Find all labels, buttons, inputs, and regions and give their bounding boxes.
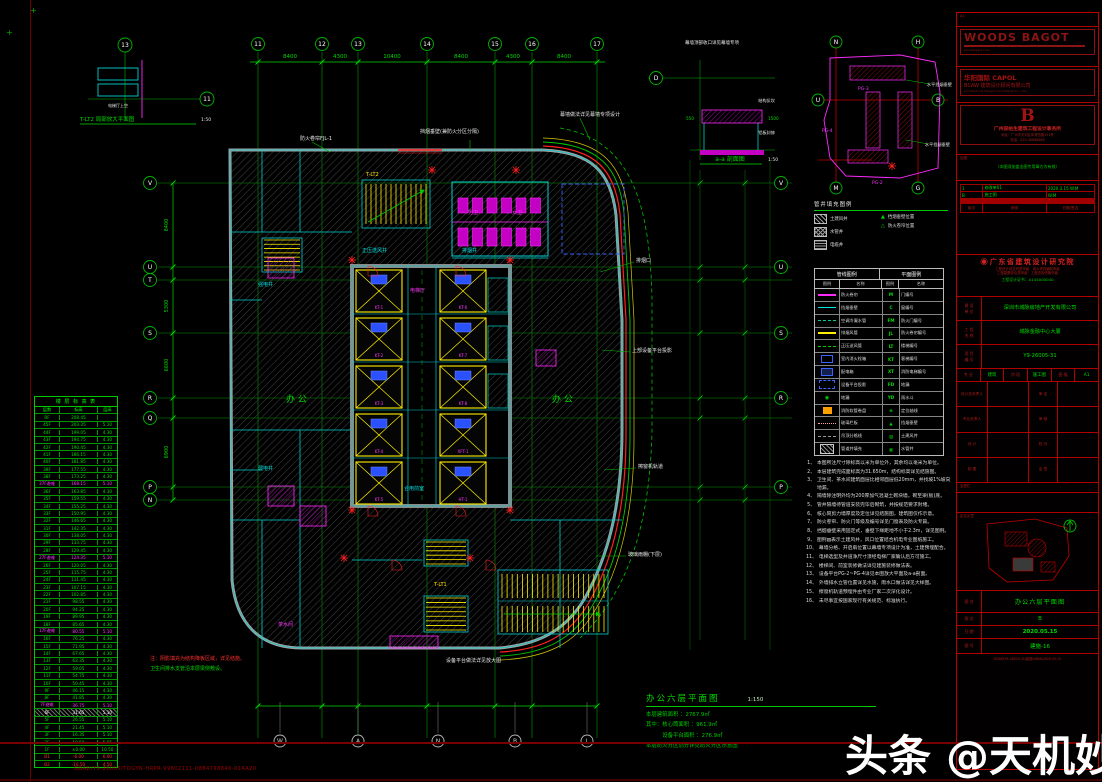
svg-text:水平挡烟垂壁: 水平挡烟垂壁 <box>925 141 950 148</box>
plan-label: 茶水间 <box>278 621 293 628</box>
svg-text:G: G <box>916 185 921 192</box>
table-row: 8F41.854.30 <box>35 695 117 702</box>
legend-row: 消防软管卷盘⊕定位轴线 <box>815 405 943 418</box>
project-field: 工 程 名 称城脉金融中心大厦 <box>957 321 1098 345</box>
elevator-car <box>371 323 387 332</box>
elevator-car <box>455 371 471 380</box>
note-item: 14、外墙排水立管位置详见水施，雨水口做法详见大样图。 <box>806 580 953 587</box>
svg-text:Q: Q <box>148 415 153 422</box>
svg-text:17: 17 <box>593 41 601 48</box>
table-row: 20F94.254.30 <box>35 606 117 613</box>
table-row: 31F142.354.30 <box>35 525 117 532</box>
table-row: 34F155.254.30 <box>35 503 117 510</box>
caption-title: 办公六层平面图 <box>646 692 720 704</box>
table-row: 9F46.154.30 <box>35 687 117 694</box>
legend-row: 正压送风管LT楼梯编号 <box>815 340 943 353</box>
plan-label: 男卫 <box>468 210 478 216</box>
svg-text:R: R <box>779 395 783 402</box>
equipment-pad <box>268 258 294 278</box>
svg-text:550: 550 <box>686 116 694 121</box>
legend-small-title: 管井填充图例 <box>814 200 948 211</box>
note-item: 5、管井隔墙待管道安装完毕后砌筑，并按规范要求封堵。 <box>806 502 953 509</box>
table-row: 42F190.454.30 <box>35 444 117 451</box>
equipment-pad <box>268 486 294 506</box>
table-row: 32F146.654.30 <box>35 518 117 525</box>
legend-item: 水管井 <box>814 227 881 237</box>
table-row: 18F85.654.30 <box>35 621 117 628</box>
svg-text:U: U <box>148 264 152 271</box>
note-item: 7、防火卷帘、防火门等级及编号详见门窗表及防火专篇。 <box>806 519 953 526</box>
signature-grid: 设计总负责人审 定专业负责人审 核设 计校 对制 图会 签 <box>957 382 1098 483</box>
svg-text:PG-2: PG-2 <box>872 180 883 186</box>
fire-shutter-mark <box>506 256 514 264</box>
cert-line-2: 工程勘察综合类甲级 工程咨询资格甲级 <box>957 271 1098 275</box>
table-row: 22F102.854.30 <box>35 591 117 598</box>
legend-row: 室内消火栓箱KT客梯编号 <box>815 353 943 366</box>
plan-label: 办 公 <box>286 393 307 405</box>
note-item: 16、未尽事宜按国家现行有关规范、标准执行。 <box>806 598 953 605</box>
legend-row: 排烟风管JL防火卷帘编号 <box>815 328 943 341</box>
svg-text:P: P <box>779 484 783 491</box>
svg-text:8400: 8400 <box>164 219 170 232</box>
svg-text:N: N <box>148 497 153 504</box>
svg-text:1:50: 1:50 <box>768 157 778 163</box>
legend-table: 管线图例 平面图例 图例名称图例名称 防火卷帘M门编号挡烟垂壁C窗编号空调冷凝水… <box>814 268 944 456</box>
plan-label: T-LT1 <box>433 582 447 588</box>
watermark: 头条 @天机妙谈 <box>845 722 1102 782</box>
rbs-logo: B 广州容柏生建筑工程设计事务所 地址：广州市天河区体育西路191号 电话：02… <box>960 105 1095 145</box>
table-row: 23F107.154.30 <box>35 584 117 591</box>
fire-shutter-mark <box>466 554 474 562</box>
svg-text:5300: 5300 <box>164 300 170 313</box>
table-row: 45F203.355.10 <box>35 422 117 429</box>
duct-shaft <box>488 374 508 408</box>
table-row: 10F50.454.30 <box>35 680 117 687</box>
svg-text:13: 13 <box>121 42 129 49</box>
table-row: 44F199.054.30 <box>35 429 117 436</box>
plan-label: 正压送风井 <box>362 247 387 254</box>
equipment-pad <box>390 636 438 648</box>
svg-text:水平挡烟垂壁: 水平挡烟垂壁 <box>927 81 952 88</box>
table-row: 43F194.754.30 <box>35 437 117 444</box>
registration-mark: + <box>6 28 13 37</box>
note-item: 12、楼梯间、前室装修做法详见建施装修做法表。 <box>806 563 953 570</box>
fire-shutter-mark <box>428 166 436 174</box>
svg-text:16: 16 <box>528 41 536 48</box>
floor-table-title: 楼 层 标 高 表 <box>35 397 117 407</box>
legend-row: 防火卷帘M门编号 <box>815 289 943 302</box>
legend-row: 挡烟垂壁C窗编号 <box>815 302 943 315</box>
svg-text:11: 11 <box>203 96 211 103</box>
version-value: B <box>982 613 1098 625</box>
svg-text:U: U <box>816 97 820 104</box>
plan-label: 卫生间排水支管沿本层梁侧敷设。 <box>150 665 225 672</box>
svg-text:KT-5: KT-5 <box>375 497 384 502</box>
svg-text:a-a 剖面图: a-a 剖面图 <box>715 155 744 163</box>
table-row: 38F173.254.30 <box>35 473 117 480</box>
elevator-car <box>371 419 387 428</box>
revision-table-footer: 版次说明日期/签名 <box>960 204 1095 213</box>
company-seal-icon: ◉ <box>980 257 988 267</box>
woods-bagot-logo: WOODS BAGOT woodsbagot.com <box>960 29 1095 55</box>
keyplan-label: 区位示意 <box>957 513 977 520</box>
legend-row: 管道井填充▦水管井 <box>815 443 943 455</box>
legend-item: △防火卷帘位置 <box>881 223 948 229</box>
equipment-pad <box>536 350 556 366</box>
stamp-note: （本图须加盖出图专用章方为有效） <box>957 164 1098 170</box>
table-row: 13F63.354.30 <box>35 658 117 665</box>
note-item: 3、卫生间、茶水间建筑面层比相邻面层低20mm，并找坡1%坡向地漏。 <box>806 477 953 491</box>
note-item: 2、本层建筑完成面标高为31.650m，结构标高详见结施图。 <box>806 469 953 476</box>
plan-label: 办 公 <box>552 393 573 405</box>
svg-text:N: N <box>834 39 839 46</box>
svg-text:结构反坎: 结构反坎 <box>758 97 776 104</box>
svg-text:14: 14 <box>423 41 431 48</box>
plan-label: 幕墙做法详见幕墙专项设计 <box>560 111 620 118</box>
drawing-sheet: 11121314151617WANBLVUTSRQPNVUSRP84004300… <box>0 0 1102 782</box>
table-row: 29F133.754.30 <box>35 540 117 547</box>
svg-text:13: 13 <box>354 41 362 48</box>
svg-text:6600: 6600 <box>164 359 170 372</box>
fire-shutter-mark <box>348 506 356 514</box>
version-label: 版 次 <box>957 613 982 625</box>
plan-label: 合用前室 <box>404 485 424 492</box>
plan-label: 电梯厅 <box>410 287 425 294</box>
table-row: 33F150.954.30 <box>35 510 117 517</box>
fire-shutter-mark <box>512 166 520 174</box>
floor-plan-canvas: 11121314151617WANBLVUTSRQPNVUSRP84004300… <box>0 0 956 782</box>
sheet-size-tag: A1 <box>957 13 1098 19</box>
svg-text:H: H <box>916 39 921 46</box>
plan-label: 挡烟垂壁(兼防火分区分隔) <box>420 128 479 135</box>
legend-header-right: 平面图例 <box>880 269 944 279</box>
dwg-name-label: 图 名 <box>957 591 982 612</box>
capol-logo: 华阳国际 CAPOL BCAW 建筑设计顾问有限公司 Architectural… <box>960 69 1095 96</box>
svg-text:电梯厅上空: 电梯厅上空 <box>108 102 128 108</box>
elevator-car <box>455 323 471 332</box>
table-row: 层数标高层高 <box>35 407 117 414</box>
legend-item: 土建风井 <box>814 214 881 224</box>
svg-text:PG-4: PG-4 <box>822 128 833 134</box>
dwg-name-value: 办公六层平面图 <box>982 591 1098 612</box>
table-row: 1F±0.0010.50 <box>35 746 117 753</box>
plan-label: 擦窗机轨道 <box>638 463 663 470</box>
legend-row: 空调冷凝水管FM防火门编号 <box>815 315 943 328</box>
equipment-pad <box>300 506 326 526</box>
svg-text:T-LT2 局部放大平面图: T-LT2 局部放大平面图 <box>79 115 135 123</box>
table-row: 7F避难36.755.10 <box>35 702 117 709</box>
table-row: 26F120.054.30 <box>35 562 117 569</box>
svg-text:T: T <box>147 277 152 284</box>
table-row: 16F76.254.30 <box>35 636 117 643</box>
table-row: 15F71.954.30 <box>35 643 117 650</box>
table-row: 35F159.554.30 <box>35 496 117 503</box>
note-item: 11、电梯选型及井道净尺寸须经电梯厂家确认后方可施工。 <box>806 554 953 561</box>
plan-label: 设备平台做法详见放大图 <box>446 657 501 664</box>
table-row: 30F138.054.30 <box>35 532 117 539</box>
table-row: 12F59.054.30 <box>35 665 117 672</box>
title-block: A1 WOODS BAGOT woodsbagot.com 华阳国际 CAPOL… <box>956 12 1099 770</box>
legend-row: ◉地漏YD雨水斗 <box>815 392 943 405</box>
legend-header-left: 管线图例 <box>815 269 880 279</box>
table-row: 3F16.355.10 <box>35 732 117 739</box>
svg-text:8400: 8400 <box>283 54 297 60</box>
svg-text:P: P <box>148 484 152 491</box>
svg-text:KT-6: KT-6 <box>459 305 468 310</box>
legend-item: ▲挡烟垂壁位置 <box>881 214 948 220</box>
svg-text:4300: 4300 <box>333 54 347 60</box>
table-row: 19F89.954.30 <box>35 614 117 621</box>
legend-row: 吊顶分格线▨土建风井 <box>815 430 943 443</box>
table-row: 36F163.854.30 <box>35 488 117 495</box>
svg-text:KT-3: KT-3 <box>375 401 384 406</box>
file-code: GDAD\Y9-26005-31\建施\06RA\2020.05.15 <box>957 654 1098 661</box>
svg-text:12: 12 <box>318 41 326 48</box>
elevator-car <box>455 467 471 476</box>
table-row: 40F181.854.30 <box>35 459 117 466</box>
plot-label: 出图： <box>957 155 1098 162</box>
plan-label: 注：阴影填充为结构降板区域，详见结施。 <box>150 655 245 662</box>
table-row: RF208.45 <box>35 414 117 421</box>
table-row: 21F98.554.30 <box>35 599 117 606</box>
table-row: 11F54.754.30 <box>35 673 117 680</box>
elevator-car <box>371 467 387 476</box>
plan-label: 排烟口 <box>636 257 651 264</box>
svg-text:幕墙顶部收口详见幕墙专项: 幕墙顶部收口详见幕墙专项 <box>685 39 739 46</box>
svg-text:铝板封修: 铝板封修 <box>758 129 776 136</box>
svg-text:M: M <box>833 185 838 192</box>
elevator-car <box>455 275 471 284</box>
svg-text:1500: 1500 <box>768 116 779 121</box>
svg-text:KT-2: KT-2 <box>375 353 384 358</box>
table-row: 39F177.554.30 <box>35 466 117 473</box>
plan-label: 上部设备平台投影 <box>632 347 672 354</box>
key-plan <box>977 516 1081 588</box>
svg-text:KT-1: KT-1 <box>375 305 384 310</box>
legend-row: 配电箱XT消防电梯编号 <box>815 366 943 379</box>
caption-scale: 1:150 <box>748 697 764 703</box>
revision-table: 1修改单012020.3.15 W.MB施工图W.M <box>960 184 1095 204</box>
duct-shaft <box>488 278 508 312</box>
spec-row: 专 业建筑阶 段施工图图 幅A1 <box>957 369 1098 382</box>
table-row: 41F186.154.30 <box>35 451 117 458</box>
legend-item: 电缆井 <box>814 240 881 250</box>
table-row: 14F67.654.30 <box>35 650 117 657</box>
svg-text:KT-7: KT-7 <box>459 353 468 358</box>
dwg-number-label: 图 号 <box>957 639 982 653</box>
floor-level-table: 楼 层 标 高 表层数标高层高RF208.4545F203.355.1044F1… <box>34 396 118 768</box>
duct-shaft <box>488 326 508 360</box>
table-row: 4F21.455.10 <box>35 724 117 731</box>
svg-text:1:50: 1:50 <box>201 117 211 123</box>
svg-text:R: R <box>148 395 152 402</box>
note-item: 1、本图所注尺寸除标高以米为单位外，其余均以毫米为单位。 <box>806 460 953 467</box>
note-item: 10、幕墙分格、开启扇位置以幕墙专项设计为准，土建预埋配合。 <box>806 545 953 552</box>
table-row: B1-6.006.00 <box>35 754 117 761</box>
table-row: 37F避难168.155.10 <box>35 481 117 488</box>
svg-text:U: U <box>779 264 783 271</box>
fire-shutter-mark <box>348 256 356 264</box>
legend-row: 设备平台投影FD地漏 <box>815 379 943 392</box>
date-value: 2020.05.15 <box>982 626 1098 638</box>
note-item: 4、隔墙除注明外均为200厚加气混凝土砌块墙，砌至梁(板)底。 <box>806 493 953 500</box>
table-row: 6F31.655.10 <box>35 709 117 716</box>
fire-shutter-mark <box>506 506 514 514</box>
date-label: 日 期 <box>957 626 982 638</box>
bottom-left-code: GDAD/Y9-26005/TOGYN-HRPR-99602111-088479… <box>74 766 257 772</box>
plan-label: 排烟井 <box>462 247 477 254</box>
area-stat: 本层建筑面积 ：2767.9㎡ <box>646 710 956 718</box>
plan-label: 女卫 <box>512 209 522 216</box>
svg-text:KT-4: KT-4 <box>375 449 384 454</box>
svg-text:PG-3: PG-3 <box>858 86 869 92</box>
note-item: 15、擦窗机轨道预埋件由专业厂家二次深化设计。 <box>806 589 953 596</box>
plan-label: 强电井 <box>258 281 273 288</box>
elevator-car <box>371 275 387 284</box>
elevator-car <box>455 419 471 428</box>
svg-text:8400: 8400 <box>557 54 571 60</box>
general-notes: 1、本图所注尺寸除标高以米为单位外，其余均以毫米为单位。2、本层建筑完成面标高为… <box>806 460 953 606</box>
svg-text:XFT-1: XFT-1 <box>457 449 468 454</box>
plan-label: 防火卷帘FJL-1 <box>300 135 332 142</box>
svg-text:10400: 10400 <box>383 54 401 60</box>
svg-text:15: 15 <box>491 41 499 48</box>
note-item: 9、图例▨表示土建风井，风口位置结合机电专业图纸施工。 <box>806 537 953 544</box>
table-row: 27F避难124.355.10 <box>35 555 117 562</box>
svg-text:4300: 4300 <box>506 54 520 60</box>
svg-text:S: S <box>148 330 152 337</box>
svg-text:8400: 8400 <box>454 54 468 60</box>
registration-mark: + <box>30 6 37 15</box>
plan-label: 弱电井 <box>258 465 273 472</box>
svg-text:S: S <box>779 330 783 337</box>
sheet-border-left <box>30 0 31 782</box>
svg-text:11: 11 <box>254 41 262 48</box>
svg-text:D: D <box>654 75 659 82</box>
table-row: 25F115.754.30 <box>35 569 117 576</box>
project-field: 项 目 编 号Y9-26005-31 <box>957 345 1098 368</box>
plan-label: T-LT2 <box>365 172 379 178</box>
huiqian-label: 会签栏 <box>957 483 1098 490</box>
design-institute-name: 广东省建筑设计研究院 <box>990 257 1075 267</box>
fire-shutter-mark <box>340 554 348 562</box>
fire-shutter-mark <box>888 162 896 170</box>
svg-text:KT-8: KT-8 <box>459 401 468 406</box>
shaft-fill-legend: 管井填充图例 土建风井水管井电缆井 ▲挡烟垂壁位置△防火卷帘位置 <box>814 200 948 262</box>
note-item: 13、设备平台PG-2~PG-4详见本图放大平面及a-a剖面。 <box>806 571 953 578</box>
elevator-car <box>371 371 387 380</box>
table-row: 17F避难80.555.10 <box>35 628 117 635</box>
table-row: 5F26.555.10 <box>35 717 117 724</box>
table-row: 24F111.454.30 <box>35 577 117 584</box>
svg-text:HT-1: HT-1 <box>458 497 468 502</box>
project-fields: 建 设 单 位深圳市城脉房地产开发有限公司工 程 名 称城脉金融中心大厦项 目 … <box>957 297 1098 369</box>
svg-text:6900: 6900 <box>164 446 170 459</box>
table-row: 28F129.454.30 <box>35 547 117 554</box>
legend-row: 玻璃栏板▲挡烟垂壁 <box>815 417 943 430</box>
project-field: 建 设 单 位深圳市城脉房地产开发有限公司 <box>957 297 1098 321</box>
plan-label: 玻璃雨棚(下层) <box>628 551 662 558</box>
note-item: 6、核心筒剪力墙厚度及定位详见结施图，建筑图仅作示意。 <box>806 511 953 518</box>
dwg-number-value: 建施-16 <box>982 639 1098 653</box>
note-item: 8、挡烟垂壁采用固定式，垂壁下缘距地不小于2.3m，详见图例。 <box>806 528 953 535</box>
cert-number: 工程设计证书：A144000040 <box>957 277 1098 283</box>
